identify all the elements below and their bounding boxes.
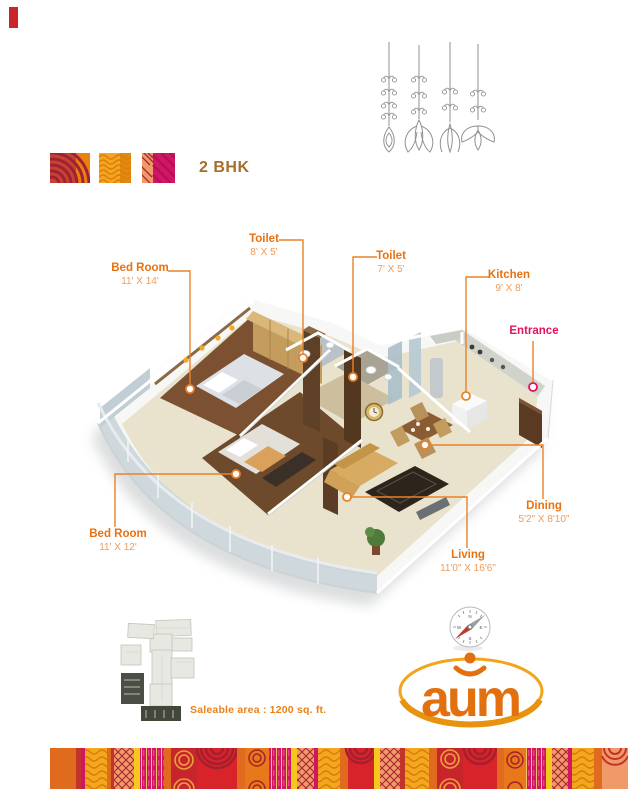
- logo-person-head: [465, 653, 476, 664]
- label-dining-dims: 5'2" X 8'10": [506, 514, 582, 526]
- highlighted-unit-2: [141, 706, 181, 721]
- label-living: Living 11'0" X 16'6": [426, 549, 510, 575]
- label-toilet1-name: Toilet: [238, 233, 290, 247]
- label-living-dims: 11'0" X 16'6": [426, 563, 510, 575]
- label-toilet2: Toilet 7' X 5': [365, 250, 417, 276]
- label-toilet2-dims: 7' X 5': [365, 264, 417, 276]
- compass-n: N: [468, 614, 471, 619]
- bottom-border-pattern: [50, 748, 628, 789]
- compass: N E S W: [450, 607, 490, 651]
- label-dining-name: Dining: [506, 500, 582, 514]
- label-bedroom2: Bed Room 11' X 12': [82, 528, 154, 554]
- label-entrance: Entrance: [504, 325, 564, 339]
- key-map: [121, 619, 194, 721]
- label-bedroom2-dims: 11' X 12': [82, 542, 154, 554]
- label-dining: Dining 5'2" X 8'10": [506, 500, 582, 526]
- highlighted-unit-1: [121, 673, 144, 704]
- compass-e: E: [479, 625, 482, 630]
- ornament-4: [462, 44, 495, 150]
- label-kitchen-dims: 9' X 8': [483, 283, 535, 295]
- label-kitchen-name: Kitchen: [483, 269, 535, 283]
- label-kitchen: Kitchen 9' X 8': [483, 269, 535, 295]
- fridge: [430, 358, 443, 398]
- label-toilet1: Toilet 8' X 5': [238, 233, 290, 259]
- label-entrance-name: Entrance: [504, 325, 564, 339]
- label-bedroom1: Bed Room 11' X 14': [104, 262, 176, 288]
- saleable-area-text: Saleable area : 1200 sq. ft.: [190, 704, 326, 716]
- label-toilet1-dims: 8' X 5': [238, 247, 290, 259]
- ornament-3: [440, 42, 459, 152]
- brochure-page: 2 BHK: [0, 0, 628, 809]
- brand-logo-text: aum: [421, 670, 520, 728]
- label-living-name: Living: [426, 549, 510, 563]
- page-graphics: N E S W aum: [0, 0, 628, 809]
- label-bedroom1-name: Bed Room: [104, 262, 176, 276]
- label-bedroom1-dims: 11' X 14': [104, 276, 176, 288]
- brand-logo: aum: [400, 653, 542, 729]
- compass-s: S: [468, 636, 471, 641]
- ornament-2: [405, 45, 433, 152]
- label-toilet2-name: Toilet: [365, 250, 417, 264]
- ornament-1: [381, 42, 396, 152]
- label-bedroom2-name: Bed Room: [82, 528, 154, 542]
- hanging-ornaments: [381, 42, 494, 152]
